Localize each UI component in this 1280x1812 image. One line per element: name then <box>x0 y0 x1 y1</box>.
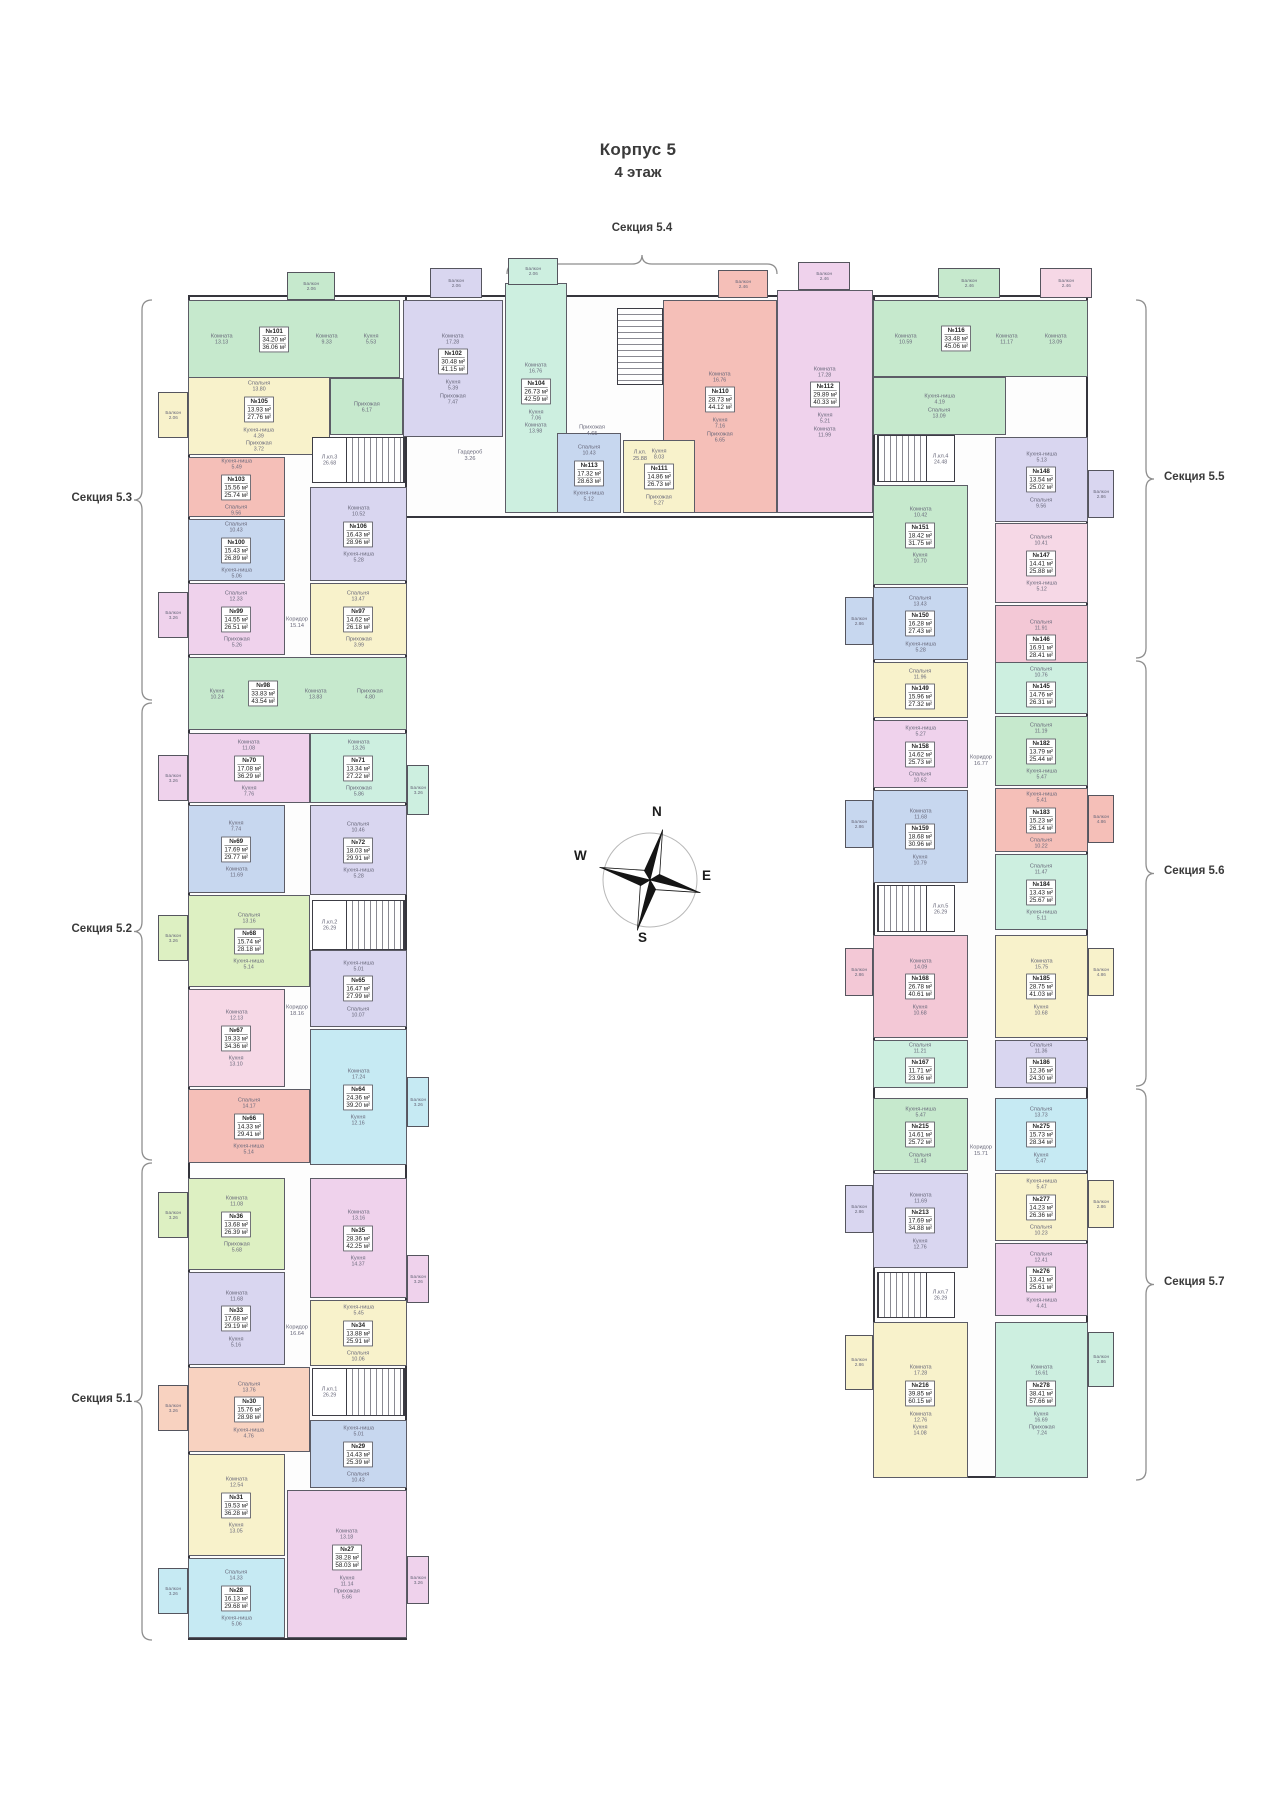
balcony-label: Балкон2.86 <box>851 1204 867 1214</box>
apartment-unit: Комната12.13№6719.33 м²34.36 м²Кухня13.1… <box>188 989 285 1087</box>
room-label: Комната11.68 <box>910 807 932 819</box>
stair-treads <box>878 886 927 931</box>
room-label: Кухня8.03 <box>652 447 667 459</box>
room-label: Комната13.18 <box>336 1528 358 1540</box>
balcony-label: Балкон3.26 <box>410 1274 426 1284</box>
room-label: Спальня9.56 <box>1030 497 1052 509</box>
room-label: Спальня10.46 <box>347 821 369 833</box>
balcony: Балкон2.86 <box>845 597 873 645</box>
room-label: Спальня11.96 <box>909 668 931 680</box>
compass-east-label: E <box>702 868 711 883</box>
room-label: Комната12.54 <box>226 1476 248 1488</box>
room-label: Комната17.28 <box>910 1364 932 1376</box>
balcony: Балкон3.26 <box>407 765 429 815</box>
room-label: Прихожая7.24 <box>1029 1424 1055 1436</box>
apartment-unit: Кухня-ниша5.01№2914.43 м²25.39 м²Спальня… <box>310 1420 407 1488</box>
room-label: Спальня13.73 <box>1030 1105 1052 1117</box>
apartment-badge: №3613.68 м²26.39 м² <box>222 1211 252 1237</box>
balcony: Балкон2.86 <box>845 948 873 996</box>
room-label: Спальня10.06 <box>347 1350 369 1362</box>
apartment-badge: №9914.55 м²26.51 м² <box>222 606 252 632</box>
room-label: Кухня10.70 <box>913 552 928 564</box>
room-label: Комната11.17 <box>996 332 1018 344</box>
apartment-unit: Спальня10.43№10015.43 м²26.89 м²Кухня-ни… <box>188 519 285 581</box>
section-brace <box>1136 661 1154 1086</box>
room-label: Кухня-ниша5.13 <box>1026 450 1057 462</box>
compass-south-label: S <box>638 930 647 945</box>
apartment-badge: №18315.23 м²26.14 м² <box>1027 807 1057 833</box>
apartment-unit: Комната11.68№3317.68 м²29.19 м²Кухня5.16 <box>188 1272 285 1365</box>
stair-core <box>617 308 663 385</box>
section-brace <box>1136 1089 1154 1480</box>
balcony-label: Балкон2.06 <box>303 281 319 291</box>
room-label: Кухня5.21 <box>818 412 833 424</box>
balcony-label: Балкон3.26 <box>165 1210 181 1220</box>
room-label: Спальня12.41 <box>1030 1250 1052 1262</box>
room-label: Кухня-ниша5.28 <box>343 551 374 563</box>
stair-core: Л.кл.226.29 <box>312 900 405 950</box>
balcony: Балкон2.06 <box>158 392 188 438</box>
apartment-unit: Кухня-ниша5.27№15814.62 м²25.73 м²Спальн… <box>873 720 968 788</box>
apartment-badge: №10230.48 м²41.15 м² <box>438 349 468 375</box>
apartment-badge: №14813.54 м²25.02 м² <box>1027 467 1057 493</box>
apartment-unit: Спальня12.33№9914.55 м²26.51 м²Прихожая5… <box>188 583 285 655</box>
apartment-unit: Спальня11.47№18413.43 м²25.67 м²Кухня-ни… <box>995 854 1088 930</box>
stair-core: Л.кл.526.29 <box>877 885 955 932</box>
section-brace <box>1136 300 1154 658</box>
room-label: Кухня5.39 <box>446 379 461 391</box>
stair-label: Л.кл.226.29 <box>313 901 346 949</box>
section-brace <box>134 300 152 700</box>
apartment-unit: Спальня11.96№14915.96 м²27.32 м² <box>873 662 968 718</box>
room-label: Кухня-ниша4.41 <box>1026 1297 1057 1309</box>
corridor-label: Коридор18.16 <box>286 1004 308 1016</box>
room-label: Спальня13.43 <box>909 594 931 606</box>
room-label: Кухня-ниша5.28 <box>343 867 374 879</box>
balcony: Балкон2.06 <box>430 268 482 298</box>
room-label: Спальня11.21 <box>909 1042 931 1054</box>
room-label: Прихожая4.80 <box>357 687 383 699</box>
apartment-unit: Спальня13.43№15016.28 м²27.43 м²Кухня-ни… <box>873 587 968 660</box>
room-label: Комната13.09 <box>1045 332 1067 344</box>
apartment-badge: №15016.28 м²27.43 м² <box>906 611 936 637</box>
corridor-label: Коридор15.14 <box>286 616 308 628</box>
apartment-unit: Кухня7.74№6917.69 м²29.77 м²Комната11.69 <box>188 805 285 893</box>
room-label: Комната16.76 <box>709 370 731 382</box>
room-label: Комната11.08 <box>238 739 260 751</box>
room-label: Кухня-ниша5.47 <box>1026 1178 1057 1190</box>
stair-treads <box>346 901 404 949</box>
apartment-unit: Спальня13.76№3015.76 м²28.98 м²Кухня-ниш… <box>188 1367 310 1452</box>
room-label: Кухня-ниша5.47 <box>905 1105 936 1117</box>
section-label: Секция 5.4 <box>582 222 702 234</box>
apartment-unit: Спальня10.76№14514.76 м²26.31 м² <box>995 662 1088 714</box>
room-label: Спальня11.43 <box>909 1152 931 1164</box>
corridor-label: Гардероб3.26 <box>458 449 483 461</box>
apartment-unit: Спальня14.33№2816.13 м²29.68 м²Кухня-ниш… <box>188 1558 285 1638</box>
apartment-badge: №3413.88 м²25.91 м² <box>344 1320 374 1346</box>
apartment-badge: №10134.20 м²36.06 м² <box>259 326 289 352</box>
apartment-badge: №6719.33 м²34.36 м² <box>222 1025 252 1051</box>
apartment-badge: №7218.03 м²29.91 м² <box>344 837 374 863</box>
room-label: Спальня10.23 <box>1030 1224 1052 1236</box>
apartment-badge: №27714.23 м²26.36 м² <box>1027 1194 1057 1220</box>
compass-rose <box>586 806 714 954</box>
room-label: Кухня-ниша4.76 <box>234 1427 265 1439</box>
apartment-badge: №18612.36 м²24.30 м² <box>1027 1058 1057 1084</box>
section-label: Секция 5.6 <box>1164 865 1254 877</box>
room-label: Кухня-ниша5.06 <box>221 1615 252 1627</box>
apartment-badge: №27515.73 м²28.34 м² <box>1027 1122 1057 1148</box>
room-label: Кухня-ниша5.14 <box>234 958 265 970</box>
room-label: Комната17.28 <box>442 332 464 344</box>
balcony: Балкон2.86 <box>845 1185 873 1233</box>
room-label: Комната10.59 <box>894 332 916 344</box>
room-label: Спальня14.33 <box>225 1569 247 1581</box>
apartment-unit: Комната17.28№10230.48 м²41.15 м²Кухня5.3… <box>403 300 503 437</box>
apartment-unit: Комната13.13№10134.20 м²36.06 м²Комната9… <box>188 300 400 378</box>
room-label: Кухня10.79 <box>913 854 928 866</box>
room-label: Комната11.99 <box>814 425 836 437</box>
apartment-badge: №27613.41 м²25.61 м² <box>1027 1267 1057 1293</box>
room-label: Комната15.75 <box>1031 957 1053 969</box>
apartment-badge: №7017.08 м²36.29 м² <box>234 755 264 781</box>
balcony-label: Балкон2.86 <box>1093 1354 1109 1364</box>
stair-label: Л.кл.726.29 <box>927 1273 954 1317</box>
room-label: Прихожая5.86 <box>346 785 372 797</box>
apartment-unit: Кухня-ниша5.45№3413.88 м²25.91 м²Спальня… <box>310 1300 407 1366</box>
balcony-label: Балкон3.26 <box>165 773 181 783</box>
corridor-label: Л.кл.25.88 <box>633 449 647 461</box>
apartment-badge: №10513.93 м²27.76 м² <box>244 396 274 422</box>
section-brace <box>134 703 152 1160</box>
room-label: Спальня13.47 <box>347 590 369 602</box>
apartment-badge: №2738.28 м²58.03 м² <box>332 1544 362 1570</box>
apartment-badge: №7113.34 м²27.22 м² <box>344 755 374 781</box>
apartment-badge: №21317.69 м²34.88 м² <box>906 1208 936 1234</box>
apartment-badge: №10315.56 м²25.74 м² <box>222 474 252 500</box>
room-label: Кухня7.16 <box>713 417 728 429</box>
balcony-label: Балкон3.26 <box>165 1586 181 1596</box>
room-label: Кухня7.74 <box>229 820 244 832</box>
apartment-badge: №3015.76 м²28.98 м² <box>234 1397 264 1423</box>
stair-label: Л.кл.326.68 <box>313 438 346 482</box>
apartment-unit: Комната11.08№3613.68 м²26.39 м²Прихожая5… <box>188 1178 285 1270</box>
balcony-label: Балкон2.46 <box>735 279 751 289</box>
balcony-label: Балкон4.86 <box>1093 814 1109 824</box>
apartment-unit: Кухня-ниша5.49№10315.56 м²25.74 м²Спальн… <box>188 457 285 517</box>
balcony-label: Балкон3.26 <box>165 933 181 943</box>
apartment-badge: №11229.89 м²40.33 м² <box>810 382 840 408</box>
room-label: Спальня13.76 <box>238 1380 260 1392</box>
balcony: Балкон3.26 <box>158 592 188 638</box>
room-label: Кухня16.69 <box>1034 1410 1049 1422</box>
apartment-badge: №15918.68 м²30.96 м² <box>906 824 936 850</box>
section-label: Секция 5.1 <box>48 1393 132 1405</box>
stair-treads <box>346 1369 404 1415</box>
apartment-badge: №21639.85 м²60.15 м² <box>906 1380 936 1406</box>
apartment-badge: №3317.68 м²29.19 м² <box>222 1306 252 1332</box>
room-label: Комната12.76 <box>910 1410 932 1422</box>
room-label: Кухня-ниша5.47 <box>1026 768 1057 780</box>
room-label: Кухня-ниша5.01 <box>343 959 374 971</box>
balcony-label: Балкон2.86 <box>851 1357 867 1367</box>
compass-north-label: N <box>652 804 662 819</box>
balcony-label: Балкон2.06 <box>165 410 181 420</box>
room-label: Спальня11.47 <box>1030 863 1052 875</box>
room-label: Прихожая5.26 <box>224 636 250 648</box>
apartment-unit: Спальня11.36№18612.36 м²24.30 м² <box>995 1040 1088 1088</box>
room-label: Комната11.68 <box>226 1289 248 1301</box>
room-label: Спальня10.07 <box>347 1006 369 1018</box>
balcony: Балкон3.26 <box>407 1255 429 1303</box>
apartment-badge: №11114.86 м²26.73 м² <box>644 464 674 490</box>
apartment-unit: Кухня-ниша5.13№14813.54 м²25.02 м²Спальн… <box>995 437 1088 522</box>
apartment-unit: Спальня13.73№27515.73 м²28.34 м²Кухня5.4… <box>995 1098 1088 1171</box>
balcony: Балкон2.86 <box>1088 1180 1114 1228</box>
section-label: Секция 5.3 <box>48 492 132 504</box>
apartment-badge: №6516.47 м²27.99 м² <box>344 976 374 1002</box>
room-label: Комната16.61 <box>1031 1364 1053 1376</box>
apartment-badge: №18213.79 м²25.44 м² <box>1027 738 1057 764</box>
apartment-unit: Спальня10.43№11317.32 м²28.63 м²Кухня-ни… <box>557 433 621 513</box>
balcony-label: Балкон2.86 <box>851 616 867 626</box>
stair-core: Л.кл.326.68 <box>312 437 405 483</box>
balcony: Балкон3.26 <box>158 755 188 801</box>
room-label: Кухня12.16 <box>351 1114 366 1126</box>
room-label: Комната17.24 <box>348 1068 370 1080</box>
room-label: Прихожая3.72 <box>246 440 272 452</box>
room-label: Кухня-ниша5.14 <box>234 1143 265 1155</box>
apartment-badge: №11317.32 м²28.63 м² <box>574 460 604 486</box>
room-label: Кухня-ниша4.19 <box>924 393 955 405</box>
balcony-label: Балкон2.46 <box>816 271 832 281</box>
apartment-unit: Кухня10.24№9833.83 м²43.54 м²Комната13.8… <box>188 657 407 730</box>
room-label: Комната13.98 <box>525 422 547 434</box>
balcony: Балкон3.26 <box>407 1556 429 1604</box>
room-label: Кухня-ниша5.12 <box>574 490 605 502</box>
room-label: Спальня11.91 <box>1030 618 1052 630</box>
room-label: Кухня-ниша5.06 <box>221 567 252 579</box>
room-label: Спальня10.76 <box>1030 666 1052 678</box>
apartment-unit: Спальня10.46№7218.03 м²29.91 м²Кухня-ниш… <box>310 805 407 895</box>
room-label: Прихожая5.68 <box>224 1241 250 1253</box>
balcony-label: Балкон3.26 <box>410 1575 426 1585</box>
room-label: Кухня13.10 <box>229 1055 244 1067</box>
room-label: Спальня11.36 <box>1030 1042 1052 1054</box>
apartment-unit: Спальня11.21№16711.71 м²23.96 м² <box>873 1040 968 1088</box>
balcony-label: Балкон2.86 <box>1093 1199 1109 1209</box>
room-label: Комната13.16 <box>348 1209 370 1221</box>
room-label: Кухня7.76 <box>242 785 257 797</box>
room-label: Комната13.13 <box>211 333 233 345</box>
room-label: Прихожая3.99 <box>346 636 372 648</box>
balcony: Балкон2.46 <box>1040 268 1092 298</box>
apartment-badge: №18413.43 м²25.67 м² <box>1027 879 1057 905</box>
apartment-unit: Спальня12.41№27613.41 м²25.61 м²Кухня-ни… <box>995 1243 1088 1316</box>
balcony: Балкон2.46 <box>798 262 850 290</box>
section-label: Секция 5.7 <box>1164 1276 1254 1288</box>
apartment-unit: Комната17.24№6424.36 м²39.20 м²Кухня12.1… <box>310 1029 407 1165</box>
room-label: Спальня10.22 <box>1030 837 1052 849</box>
room-label: Прихожая6.65 <box>707 430 733 442</box>
apartment-badge: №6917.69 м²29.77 м² <box>222 836 252 862</box>
apartment-unit: Комната17.28№11229.89 м²40.33 м²Кухня5.2… <box>777 290 873 513</box>
balcony: Балкон3.26 <box>158 1385 188 1431</box>
apartment-badge: №27838.41 м²57.66 м² <box>1027 1380 1057 1406</box>
room-label: Спальня13.16 <box>238 912 260 924</box>
apartment-badge: №10015.43 м²26.89 м² <box>222 537 252 563</box>
room-label: Спальня14.17 <box>238 1097 260 1109</box>
stair-treads <box>878 1273 927 1317</box>
balcony: Балкон4.86 <box>1088 795 1114 843</box>
apartment-unit: Комната15.75№18528.75 м²41.03 м²Кухня10.… <box>995 935 1088 1038</box>
room-label: Комната14.09 <box>910 957 932 969</box>
apartment-unit: Комната13.26№7113.34 м²27.22 м²Прихожая5… <box>310 733 407 803</box>
balcony: Балкон2.86 <box>1088 470 1114 518</box>
room-label: Спальня10.43 <box>347 1471 369 1483</box>
apartment-badge: №18528.75 м²41.03 м² <box>1027 974 1057 1000</box>
apartment-unit: Спальня10.41№14714.41 м²25.88 м²Кухня-ни… <box>995 523 1088 603</box>
apartment-badge: №16826.78 м²40.61 м² <box>906 974 936 1000</box>
apartment-unit: Комната11.68№15918.68 м²30.96 м²Кухня10.… <box>873 790 968 883</box>
room-label: Комната10.52 <box>348 505 370 517</box>
apartment-unit: Спальня13.47№9714.62 м²26.18 м²Прихожая3… <box>310 583 407 655</box>
apartment-badge: №14514.76 м²26.31 м² <box>1027 682 1057 708</box>
apartment-unit: Комната17.28№21639.85 м²60.15 м²Комната1… <box>873 1322 968 1478</box>
stair-core: Л.кл.424.48 <box>877 435 955 482</box>
room-label: Кухня-ниша4.39 <box>244 426 275 438</box>
room-label: Комната13.26 <box>348 739 370 751</box>
section-label: Секция 5.5 <box>1164 471 1254 483</box>
room-label: Прихожая6.17 <box>354 400 380 412</box>
balcony: Балкон2.86 <box>1088 1332 1114 1387</box>
corridor-label: Коридор15.71 <box>970 1144 992 1156</box>
balcony: Балкон3.26 <box>158 915 188 961</box>
room-label: Спальня13.80 <box>248 380 270 392</box>
balcony: Балкон3.26 <box>158 1192 188 1238</box>
apartment-badge: №15814.62 м²25.73 м² <box>906 741 936 767</box>
apartment-unit: Комната11.69№21317.69 м²34.88 м²Кухня12.… <box>873 1173 968 1268</box>
apartment-unit: Комната12.54№3119.53 м²36.28 м²Кухня13.0… <box>188 1454 285 1556</box>
room-label: Прихожая5.27 <box>646 494 672 506</box>
room-label: Спальня13.09 <box>928 407 950 419</box>
apartment-badge: №14616.91 м²28.41 м² <box>1027 635 1057 661</box>
room-label: Спальня9.56 <box>225 504 247 516</box>
corridor-label: Коридор16.64 <box>286 1324 308 1336</box>
stair-label: Л.кл.126.29 <box>313 1369 346 1415</box>
balcony-label: Балкон2.86 <box>1093 489 1109 499</box>
corridor-label: Прихожая4.65 <box>579 424 605 436</box>
apartment-badge: №11028.73 м²44.12 м² <box>705 387 735 413</box>
apartment-badge: №2914.43 м²25.39 м² <box>344 1441 374 1467</box>
balcony: Балкон2.86 <box>845 1335 873 1390</box>
balcony-label: Балкон2.06 <box>448 278 464 288</box>
apartment-unit: Комната16.61№27838.41 м²57.66 м²Кухня16.… <box>995 1322 1088 1478</box>
room-label: Кухня10.68 <box>1034 1004 1049 1016</box>
room-label: Спальня12.33 <box>225 590 247 602</box>
room-label: Комната13.83 <box>305 687 327 699</box>
room-label: Кухня-ниша5.11 <box>1026 909 1057 921</box>
room-label: Кухня12.76 <box>913 1238 928 1250</box>
room-label: Прихожая7.47 <box>440 392 466 404</box>
stair-label: Л.кл.526.29 <box>927 886 954 931</box>
room-label: Кухня5.53 <box>364 333 379 345</box>
stair-treads <box>346 438 404 482</box>
apartment-badge: №6815.74 м²28.18 м² <box>234 928 264 954</box>
room-label: Комната16.76 <box>525 362 547 374</box>
balcony: Балкон2.46 <box>718 270 768 298</box>
room-label: Комната11.08 <box>226 1195 248 1207</box>
apartment-unit: Комната10.59№11633.48 м²45.06 м²Комната1… <box>873 300 1088 377</box>
balcony-label: Балкон3.26 <box>410 785 426 795</box>
balcony-label: Балкон2.86 <box>851 967 867 977</box>
room-label: Кухня11.14 <box>340 1574 355 1586</box>
apartment-unit: Комната10.52№10616.43 м²28.96 м²Кухня-ни… <box>310 487 407 581</box>
room-label: Комната11.69 <box>910 1191 932 1203</box>
apartment-badge: №10616.43 м²28.96 м² <box>344 521 374 547</box>
balcony-label: Балкон3.26 <box>165 1403 181 1413</box>
section-label: Секция 5.2 <box>48 923 132 935</box>
apartment-unit: Прихожая6.17 <box>330 378 403 435</box>
room-label: Кухня5.16 <box>229 1336 244 1348</box>
stair-core: Л.кл.126.29 <box>312 1368 405 1416</box>
apartment-badge: №6614.33 м²29.41 м² <box>234 1113 264 1139</box>
compass-west-label: W <box>574 848 587 863</box>
room-label: Кухня-ниша5.41 <box>1026 791 1057 803</box>
apartment-unit: Комната14.09№16826.78 м²40.61 м²Кухня10.… <box>873 935 968 1038</box>
room-label: Кухня10.68 <box>913 1004 928 1016</box>
room-label: Кухня13.05 <box>229 1522 244 1534</box>
room-label: Кухня-ниша5.27 <box>905 725 936 737</box>
stair-treads <box>878 436 927 481</box>
balcony-label: Балкон3.26 <box>410 1097 426 1107</box>
apartment-badge: №2816.13 м²29.68 м² <box>222 1585 252 1611</box>
apartment-unit: Кухня-ниша5.47№21514.61 м²25.72 м²Спальн… <box>873 1098 968 1171</box>
room-label: Кухня-ниша5.12 <box>1026 580 1057 592</box>
room-label: Кухня-ниша5.49 <box>221 458 252 470</box>
apartment-unit: Комната13.16№3528.36 м²42.25 м²Кухня14.3… <box>310 1178 407 1298</box>
room-label: Спальня10.43 <box>578 444 600 456</box>
balcony: Балкон3.26 <box>158 1568 188 1614</box>
apartment-unit: Спальня13.80№10513.93 м²27.76 м²Кухня-ни… <box>188 377 330 455</box>
balcony: Балкон4.86 <box>1088 948 1114 996</box>
room-label: Кухня14.08 <box>913 1424 928 1436</box>
apartment-unit: Кухня-ниша4.19Спальня13.09 <box>873 377 1006 435</box>
apartment-unit: Кухня-ниша5.47№27714.23 м²26.36 м²Спальн… <box>995 1173 1088 1241</box>
apartment-badge: №10426.73 м²42.59 м² <box>521 378 551 404</box>
room-label: Кухня14.37 <box>351 1255 366 1267</box>
apartment-badge: №9833.83 м²43.54 м² <box>248 681 278 707</box>
apartment-unit: Спальня11.19№18213.79 м²25.44 м²Кухня-ни… <box>995 716 1088 786</box>
room-label: Кухня5.47 <box>1034 1152 1049 1164</box>
balcony-label: Балкон2.06 <box>525 266 541 276</box>
balcony-label: Балкон2.46 <box>961 278 977 288</box>
apartment-badge: №16711.71 м²23.96 м² <box>906 1058 936 1084</box>
apartment-badge: №3119.53 м²36.28 м² <box>222 1492 252 1518</box>
room-label: Кухня10.24 <box>209 687 224 699</box>
balcony: Балкон2.86 <box>845 800 873 848</box>
balcony: Балкон3.26 <box>407 1077 429 1127</box>
room-label: Кухня-ниша5.28 <box>905 641 936 653</box>
balcony-label: Балкон3.26 <box>165 610 181 620</box>
apartment-unit: Кухня-ниша5.41№18315.23 м²26.14 м²Спальн… <box>995 788 1088 852</box>
apartment-unit: Спальня13.16№6815.74 м²28.18 м²Кухня-ниш… <box>188 895 310 987</box>
balcony-label: Балкон2.46 <box>1058 278 1074 288</box>
floor-plan-canvas: Корпус 5 4 этаж Комната13.13№10134.20 м²… <box>0 0 1280 1812</box>
apartment-badge: №15118.42 м²31.75 м² <box>906 522 936 548</box>
section-brace <box>134 1163 152 1640</box>
